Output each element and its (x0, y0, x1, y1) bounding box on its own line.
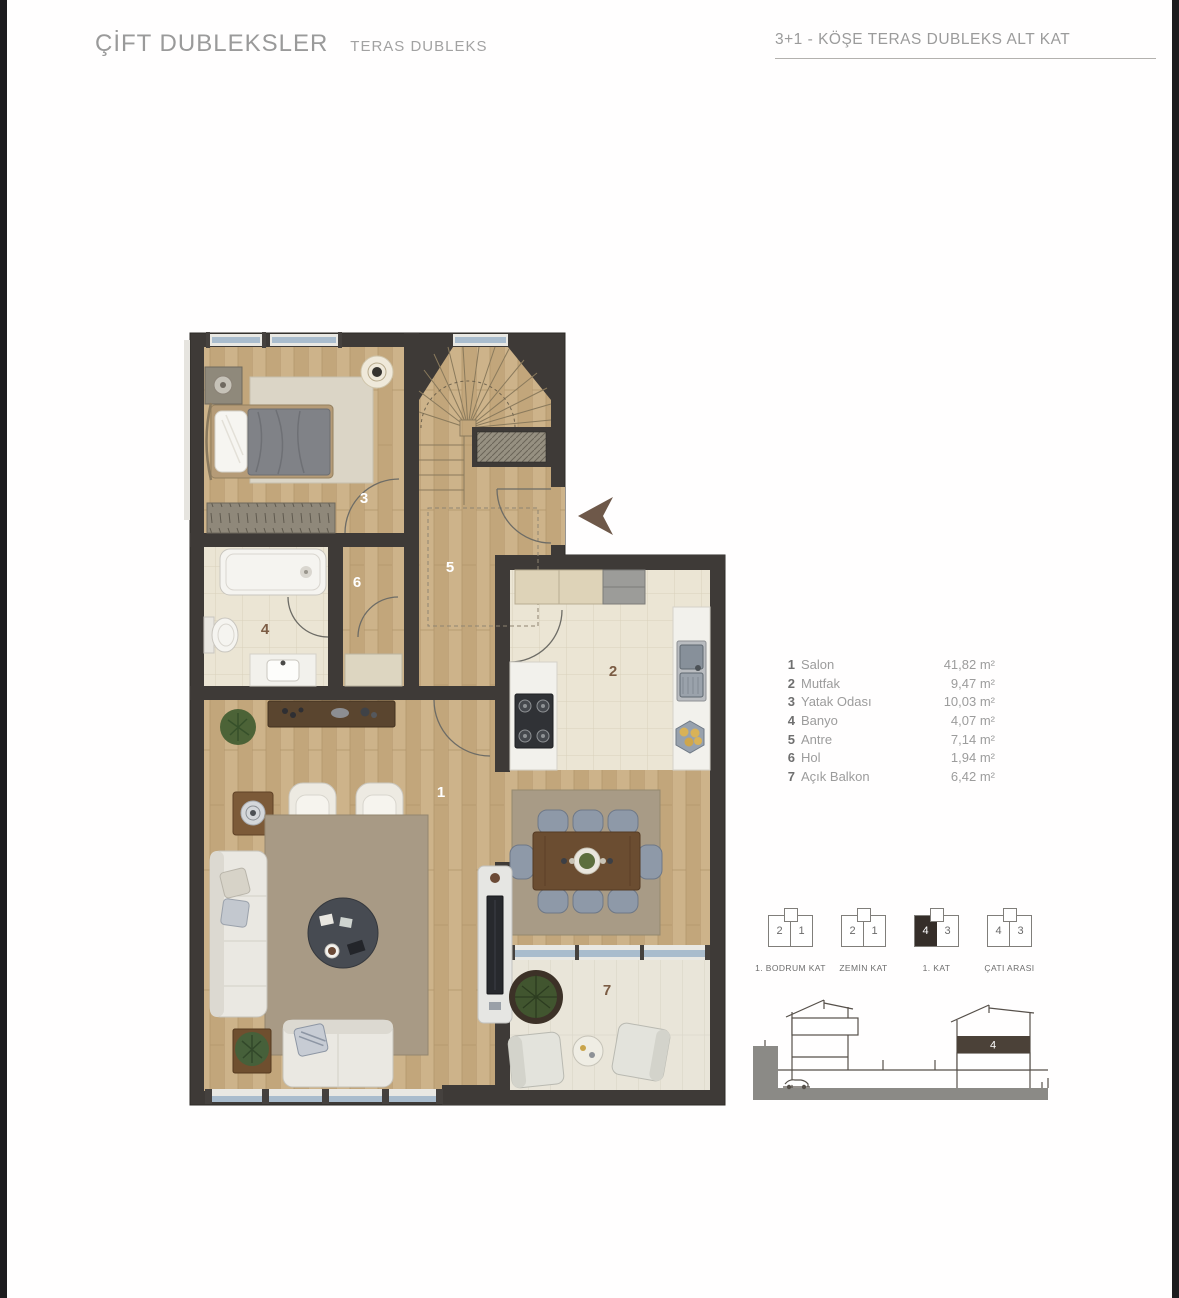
bedroom-window-1 (206, 332, 266, 348)
roof-box-icon (857, 908, 871, 922)
bed (207, 403, 334, 480)
dining-furniture (510, 790, 662, 935)
salon-window-wall (205, 1089, 443, 1104)
room-legend: 1Salon41,82 m² 2Mutfak9,47 m² 3Yatak Oda… (783, 655, 995, 786)
balcony-chair-left (507, 1031, 564, 1088)
room-label-banyo: 4 (261, 621, 270, 638)
balcony-chair-right (611, 1022, 671, 1082)
passage-floor (495, 772, 510, 862)
loveseat (283, 1020, 393, 1087)
legend-row: 1Salon41,82 m² (783, 655, 995, 674)
bedroom-window-2 (270, 332, 342, 348)
room-label-acik-balkon: 7 (603, 982, 611, 999)
upper-cabinet-2 (559, 570, 603, 604)
page-edge-right (1172, 0, 1179, 1298)
cooktop (515, 694, 553, 748)
roof-box-icon (1003, 908, 1017, 922)
entry-threshold (551, 487, 565, 545)
floor-diagram-bodrum: 2 1 1. BODRUM KAT (768, 915, 813, 947)
wardrobe (207, 503, 335, 533)
legend-row: 6Hol1,94 m² (783, 748, 995, 767)
coffee-table (308, 898, 378, 968)
building-section: 4 (745, 995, 1055, 1105)
vanity-sink (250, 654, 316, 686)
section-floor-label: 4 (990, 1040, 996, 1052)
roof-box-icon (930, 908, 944, 922)
floor-diagram-zemin: 2 1 ZEMİN KAT (841, 915, 886, 947)
floor-diagram-cati: 4 3 ÇATI ARASI (987, 915, 1032, 947)
stair-window (453, 334, 508, 346)
roof-box-icon (784, 908, 798, 922)
page-edge-left (0, 0, 7, 1298)
brochure-page: ÇİFT DUBLEKSLER TERAS DUBLEKS 3+1 - KÖŞE… (0, 0, 1179, 1298)
room-label-antre: 5 (446, 559, 454, 576)
plan-title: 3+1 - KÖŞE TERAS DUBLEKS ALT KAT (775, 31, 1156, 59)
plant-2 (233, 1029, 271, 1073)
wall-reveal (184, 340, 190, 520)
legend-row: 2Mutfak9,47 m² (783, 674, 995, 693)
room-label-hol: 6 (353, 574, 361, 591)
floor-diagram-1kat: 4 3 1. KAT (914, 915, 959, 947)
balcony-table (573, 1036, 603, 1066)
toilet (204, 617, 238, 653)
legend-row: 5Antre7,14 m² (783, 730, 995, 749)
page-title: ÇİFT DUBLEKSLER (95, 30, 328, 58)
upper-cabinet-1 (515, 570, 559, 604)
balcony-glass-doors (510, 945, 710, 960)
hol-closet (345, 654, 402, 686)
kitchen-sink (677, 641, 706, 701)
room-label-yatak-odasi: 3 (360, 490, 368, 507)
page-subtitle: TERAS DUBLEKS (350, 38, 487, 55)
floor-plan: 3 6 4 5 2 1 7 (180, 298, 740, 1118)
legend-row: 4Banyo4,07 m² (783, 711, 995, 730)
legend-row: 7Açık Balkon6,42 m² (783, 767, 995, 786)
legend-row: 3Yatak Odası10,03 m² (783, 692, 995, 711)
room-label-mutfak: 2 (609, 663, 617, 680)
sofa (210, 851, 267, 1017)
entrance-arrow-icon (578, 497, 613, 535)
page-title-group: ÇİFT DUBLEKSLER TERAS DUBLEKS (95, 30, 488, 58)
tv-console (478, 866, 512, 1023)
room-label-salon: 1 (437, 784, 445, 801)
